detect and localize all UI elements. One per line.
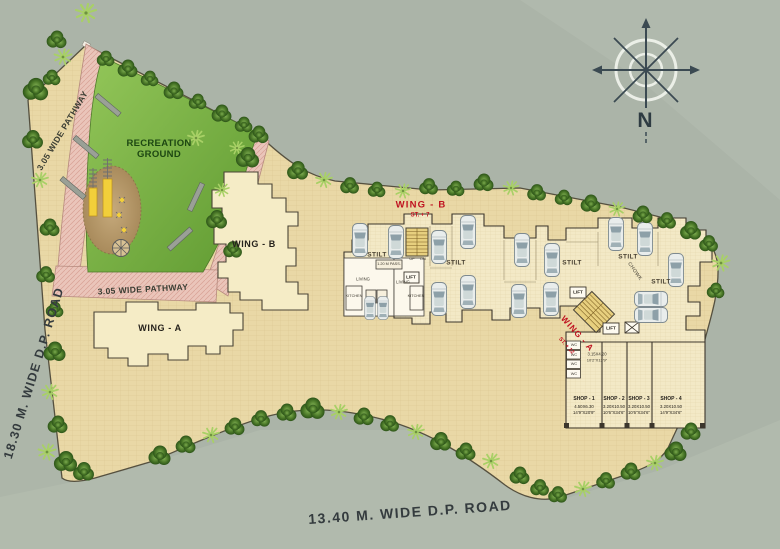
shop-2-dim-m: 3.20X10.50 xyxy=(603,404,625,410)
shop-1-label: SHOP - 1 4.50X6.30 14'9"X20'9" xyxy=(573,396,595,416)
shop-2-name: SHOP - 2 xyxy=(603,396,625,404)
tree-icon xyxy=(555,190,573,206)
shop-4-name: SHOP - 4 xyxy=(660,396,682,404)
car-icon xyxy=(432,283,447,316)
tree-icon xyxy=(527,184,546,201)
tree-icon xyxy=(657,212,676,229)
tree-icon xyxy=(447,181,465,197)
merry-go-round-icon xyxy=(113,240,130,257)
shop-2-dim-ft: 10'6"X34'6" xyxy=(603,410,625,416)
tree-icon xyxy=(581,195,601,213)
tree-icon xyxy=(141,71,159,87)
staircase-icon xyxy=(406,228,428,256)
shop-3-name: SHOP - 3 xyxy=(628,396,650,404)
car-icon xyxy=(461,216,476,249)
tree-icon xyxy=(212,105,232,123)
stilt-label-5: STILT xyxy=(651,278,671,285)
north-label: N xyxy=(637,109,652,133)
car-icon xyxy=(635,308,668,323)
kitchen-label-1: KITCHEN xyxy=(346,294,363,298)
wing-b-plan-title: WING - B xyxy=(396,201,447,212)
wing-a-footprint-label: WING - A xyxy=(138,323,181,333)
car-icon xyxy=(609,218,624,251)
tree-icon xyxy=(633,206,653,224)
wc-label-1: WC xyxy=(571,343,577,347)
shop-4-label: SHOP - 4 3.20X10.50 14'9"X34'6" xyxy=(660,396,682,416)
car-icon xyxy=(365,296,376,319)
wc-block-dim-m: 3.15X4.20 xyxy=(587,353,606,358)
tree-icon xyxy=(419,178,438,195)
shop-3-dim-ft: 10'6"X34'6" xyxy=(628,410,650,416)
car-icon xyxy=(638,223,653,256)
wc-label-4: WC xyxy=(571,371,577,375)
stilt-label-3: STILT xyxy=(562,259,582,266)
tree-icon xyxy=(164,82,184,100)
tree-icon xyxy=(474,174,494,192)
wc-label-3: WC xyxy=(571,362,577,366)
car-icon xyxy=(512,285,527,318)
wc-block-dim-ft: 10'2"X13'9" xyxy=(587,359,607,364)
up-label: UP xyxy=(409,257,414,261)
kitchen-label-2: KITCHEN xyxy=(408,294,425,298)
shop-4-dim-m: 3.20X10.50 xyxy=(660,404,682,410)
wc-label-2: WC xyxy=(571,352,577,356)
shop-1-name: SHOP - 1 xyxy=(573,396,595,404)
car-icon xyxy=(432,231,447,264)
car-icon xyxy=(635,292,668,307)
car-icon xyxy=(544,283,559,316)
site-plan-scene: 18.30 M. WIDE D.P. ROAD 13.40 M. WIDE D.… xyxy=(0,0,780,549)
car-icon xyxy=(461,276,476,309)
lift-label-3: LIFT xyxy=(606,325,616,330)
car-icon xyxy=(389,226,404,259)
tree-icon xyxy=(340,177,359,194)
lift-label-2: LIFT xyxy=(573,289,583,294)
wing-b-footprint-label: WING - B xyxy=(232,239,276,249)
shop-3-label: SHOP - 3 3.20X10.50 10'6"X34'6" xyxy=(628,396,650,416)
duct-x-box xyxy=(625,322,639,333)
shop-4-dim-ft: 14'9"X34'6" xyxy=(660,410,682,416)
stilt-label-4: STILT xyxy=(618,253,638,260)
palm-icon xyxy=(76,4,96,22)
passage-label: 1.20 M PASS. xyxy=(377,262,401,266)
stilt-label-2: STILT xyxy=(446,259,466,266)
recreation-ground-label: RECREATION GROUND xyxy=(114,139,204,161)
shop-1-dim-m: 4.50X6.30 xyxy=(573,404,595,410)
living-label-2: LIVING xyxy=(396,281,410,286)
shop-1-dim-ft: 14'9"X20'9" xyxy=(573,410,595,416)
car-icon xyxy=(378,296,389,319)
tree-icon xyxy=(235,117,253,133)
shop-2-label: SHOP - 2 3.20X10.50 10'6"X34'6" xyxy=(603,396,625,416)
tree-icon xyxy=(189,94,207,110)
shop-3-dim-m: 3.20X10.50 xyxy=(628,404,650,410)
car-icon xyxy=(353,224,368,257)
car-icon xyxy=(515,234,530,267)
living-label-1: LIVING xyxy=(356,278,370,283)
dn-label: DN xyxy=(420,257,425,261)
site-plan-canvas xyxy=(0,0,780,549)
wing-b-storeys: ST. + 7 xyxy=(411,213,430,220)
stilt-label-1: STILT xyxy=(367,251,387,258)
car-icon xyxy=(545,244,560,277)
